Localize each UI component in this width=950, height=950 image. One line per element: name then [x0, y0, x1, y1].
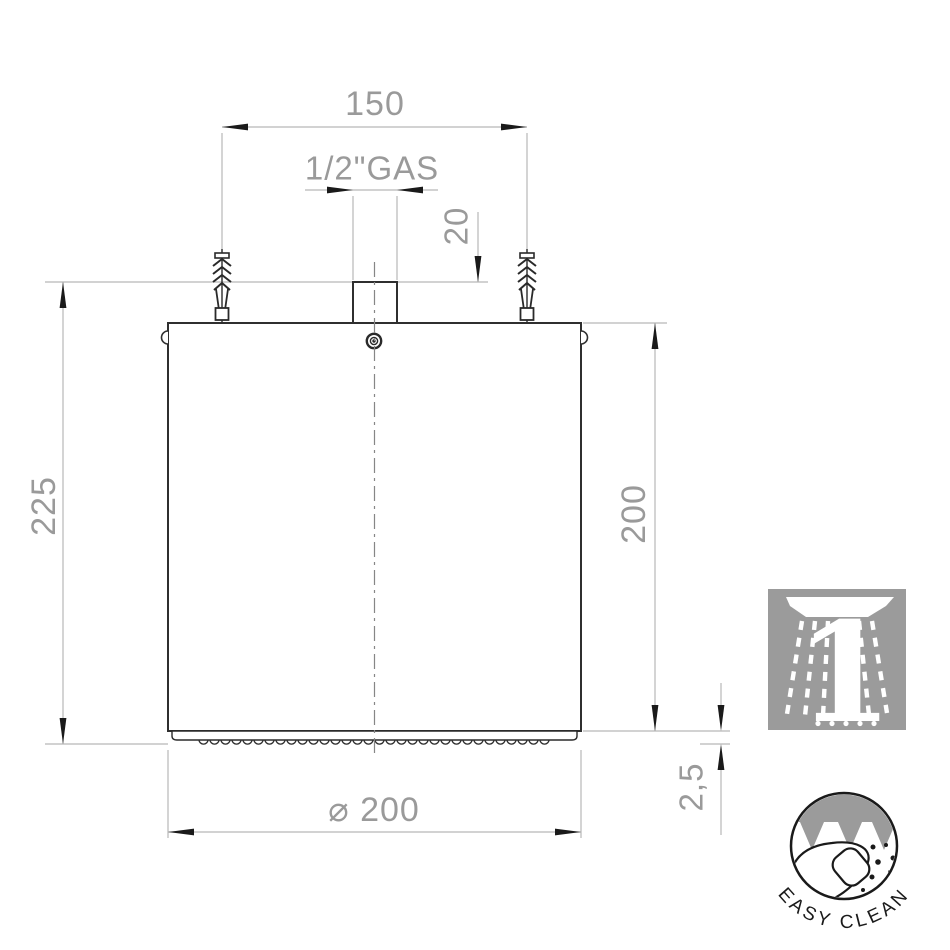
dim-thread-label: 1/2"GAS [305, 152, 439, 185]
spray-count-number: 1 [797, 591, 893, 754]
shower-head-drawing: 1 EASY CLEAN [0, 0, 950, 950]
left-clip-tab [162, 331, 168, 344]
dim-pipe-height-label: 20 [440, 207, 473, 246]
technical-drawing-page: 1 EASY CLEAN [0, 0, 950, 950]
wall-anchor-right [518, 249, 536, 322]
right-clip-tab [581, 331, 588, 344]
dim-total-height-label: 225 [27, 476, 61, 536]
wall-anchor-left [213, 249, 231, 322]
dim-body-height-label: 200 [617, 484, 651, 544]
dim-mount-spacing-label: 150 [345, 87, 405, 121]
easy-clean-badge: EASY CLEAN [774, 786, 915, 933]
dim-nozzle-protrusion-label: 2,5 [675, 763, 708, 812]
dim-diameter-label: ⌀ 200 [328, 793, 420, 827]
spray-count-icon: 1 [768, 589, 906, 754]
shower-head-body [162, 249, 588, 757]
